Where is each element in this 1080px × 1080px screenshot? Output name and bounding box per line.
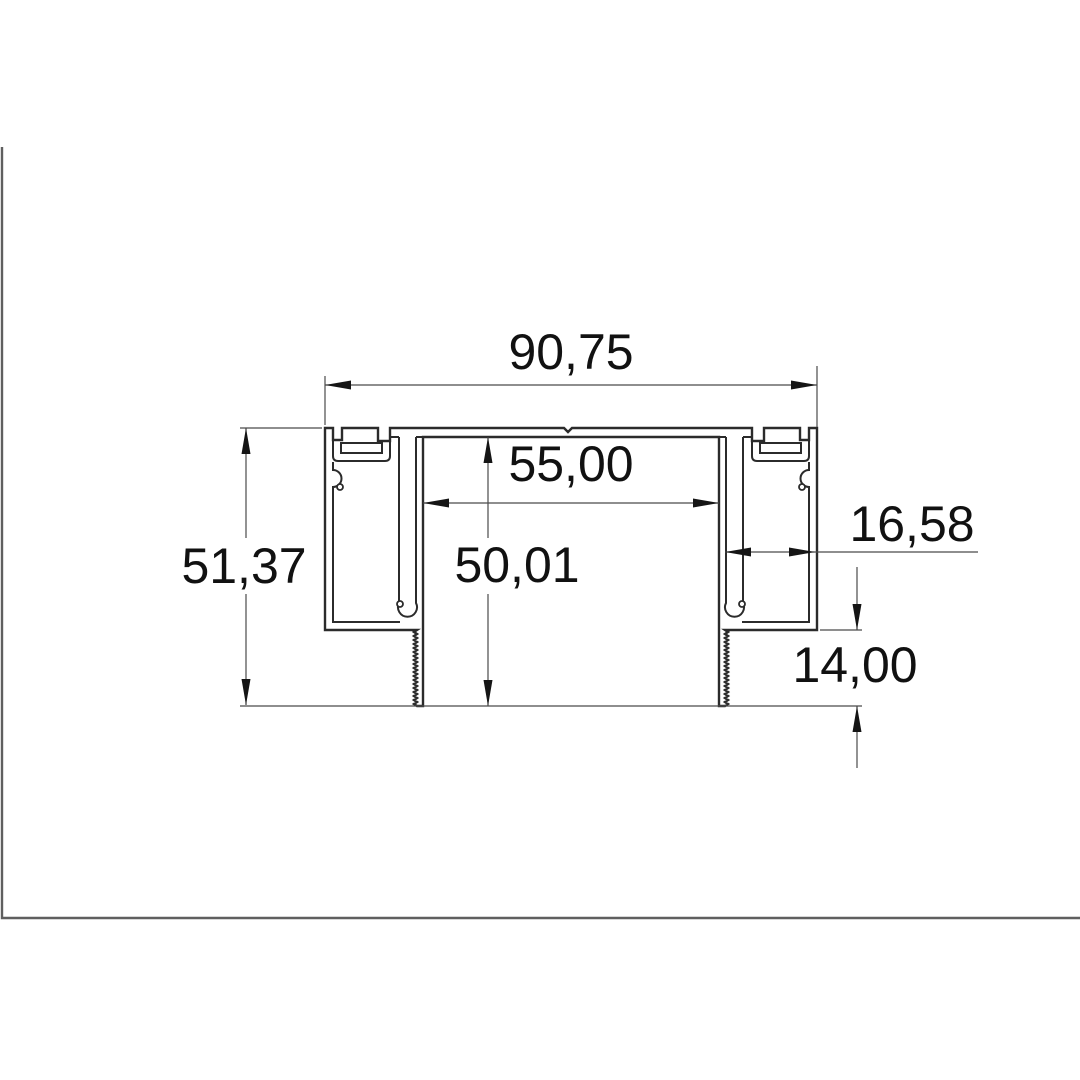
dimension-overall-width: 90,75 [325,324,817,427]
drawing-canvas: 90,75 55,00 50,01 51,37 [0,0,1080,1080]
arrow-left-icon [325,381,351,390]
dimension-leg-height-label: 14,00 [792,637,917,693]
left-c-channel-inner [341,443,382,453]
dimension-side-pocket-width: 16,58 [725,496,978,557]
arrow-right-icon [693,499,719,508]
dimension-channel-depth-label: 50,01 [454,537,579,593]
arrow-left-icon [423,499,449,508]
right-screw-port-channel [725,437,744,617]
arrow-down-icon [853,604,862,630]
dimension-side-pocket-width-label: 16,58 [849,496,974,552]
arrow-up-icon [853,706,862,732]
dimension-channel-width: 55,00 [423,436,719,508]
right-screw-port-notch [739,601,745,607]
right-wall-boss-notch [799,484,805,490]
left-screw-port-channel [398,437,417,617]
dimension-overall-height-label: 51,37 [181,538,306,594]
dimension-leg-height: 14,00 [792,567,917,768]
arrow-up-icon [484,437,493,463]
right-c-channel-inner [760,443,801,453]
dimension-overall-height: 51,37 [181,428,322,705]
arrow-up-icon [242,428,251,454]
arrow-right-icon [791,381,817,390]
profile-drawing: 90,75 55,00 50,01 51,37 [0,0,1080,1080]
dimension-overall-width-label: 90,75 [508,324,633,380]
left-wall-boss-notch [337,484,343,490]
arrow-down-icon [242,679,251,705]
dimension-channel-width-label: 55,00 [508,436,633,492]
arrow-right-icon [789,548,815,557]
arrow-left-icon [725,548,751,557]
arrow-down-icon [484,680,493,706]
left-screw-port-notch [397,601,403,607]
